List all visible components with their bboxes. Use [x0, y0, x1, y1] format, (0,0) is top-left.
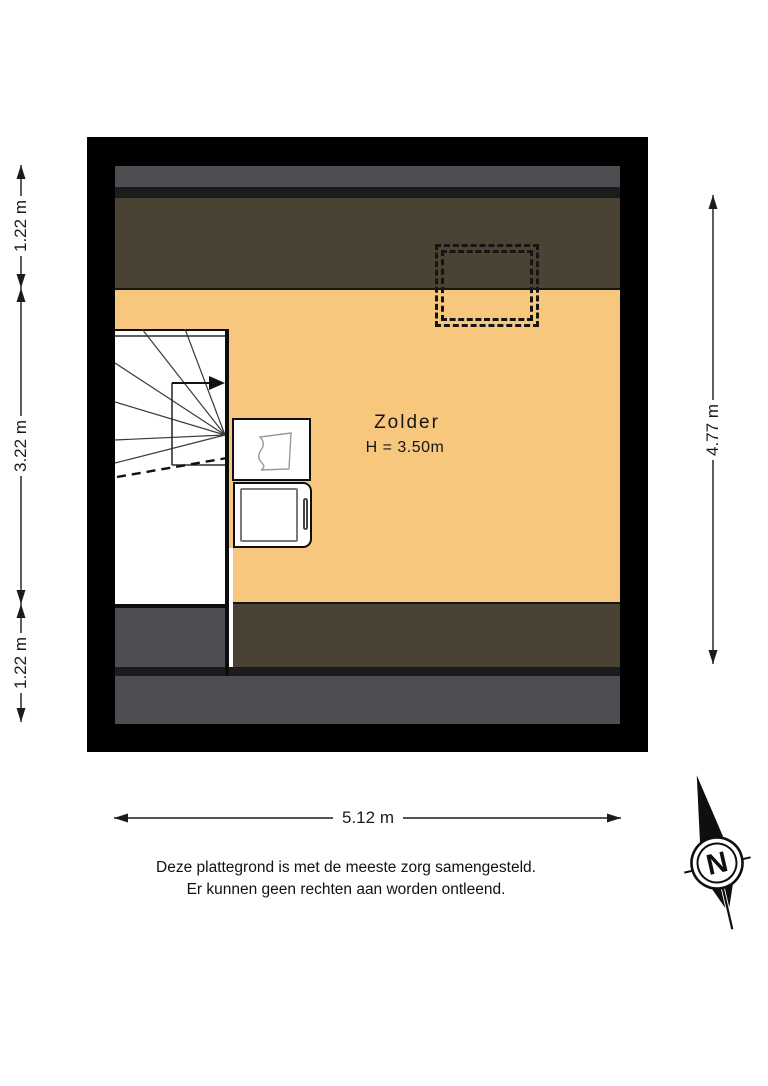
- stair-direction-arrow-icon: [209, 376, 225, 390]
- disclaimer-line-2: Er kunnen geen rechten aan worden ontlee…: [156, 879, 536, 901]
- stairwell-under-roof: [115, 608, 225, 667]
- dim-label-left-bottom: 1.22 m: [9, 633, 33, 693]
- dim-label-bottom: 5.12 m: [333, 808, 403, 828]
- north-arrow-icon: N: [660, 763, 768, 935]
- roof-strip-top-gray: [115, 166, 620, 187]
- plan-interior: Zolder H = 3.50m: [115, 166, 620, 724]
- roof-strip-bottom-gray: [115, 676, 620, 724]
- stairs-icon: [115, 329, 230, 609]
- room-label: Zolder: [374, 412, 440, 434]
- sink-basin-icon: [234, 420, 309, 479]
- dim-label-right: 4.77 m: [701, 400, 725, 460]
- disclaimer: Deze plattegrond is met de meeste zorg s…: [156, 857, 536, 901]
- roof-strip-top-dark: [115, 187, 620, 198]
- dim-label-left-top: 1.22 m: [9, 196, 33, 256]
- dim-label-left-middle: 3.22 m: [9, 416, 33, 476]
- washer-door-icon: [240, 488, 298, 542]
- roof-slope-top: [115, 198, 620, 288]
- washing-machine: [233, 482, 312, 548]
- skylight-dashed-outline-inner: [441, 250, 533, 321]
- washer-handle-icon: [303, 498, 308, 530]
- room-height-label: H = 3.50m: [366, 439, 445, 457]
- disclaimer-line-1: Deze plattegrond is met de meeste zorg s…: [156, 857, 536, 879]
- floor-plan-page: Zolder H = 3.50m 1.22 m 3.22 m 1.22 m 4.…: [0, 0, 768, 1086]
- sink-cabinet: [232, 418, 311, 481]
- roof-strip-bottom-dark: [115, 667, 620, 676]
